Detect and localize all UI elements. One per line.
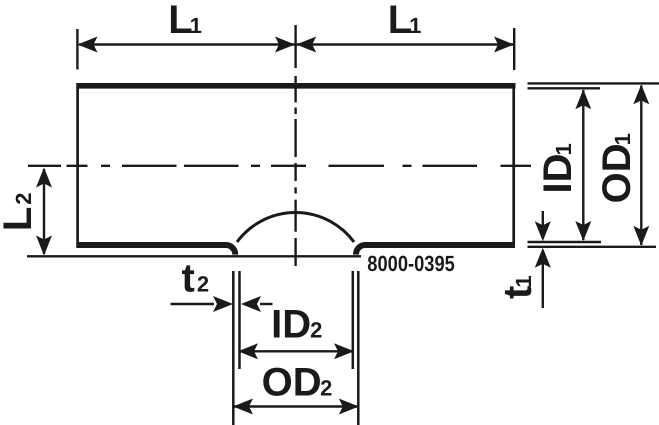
svg-text:L1: L1 (168, 0, 202, 42)
svg-text:ID2: ID2 (271, 303, 322, 347)
svg-text:ID1: ID1 (536, 143, 580, 193)
svg-text:t2: t2 (182, 256, 210, 300)
svg-text:OD1: OD1 (595, 133, 639, 203)
svg-text:L2: L2 (0, 192, 40, 231)
svg-text:L1: L1 (388, 0, 422, 42)
svg-text:OD2: OD2 (262, 361, 333, 405)
svg-text:8000-0395: 8000-0395 (367, 251, 455, 276)
svg-text:t1: t1 (496, 275, 540, 299)
